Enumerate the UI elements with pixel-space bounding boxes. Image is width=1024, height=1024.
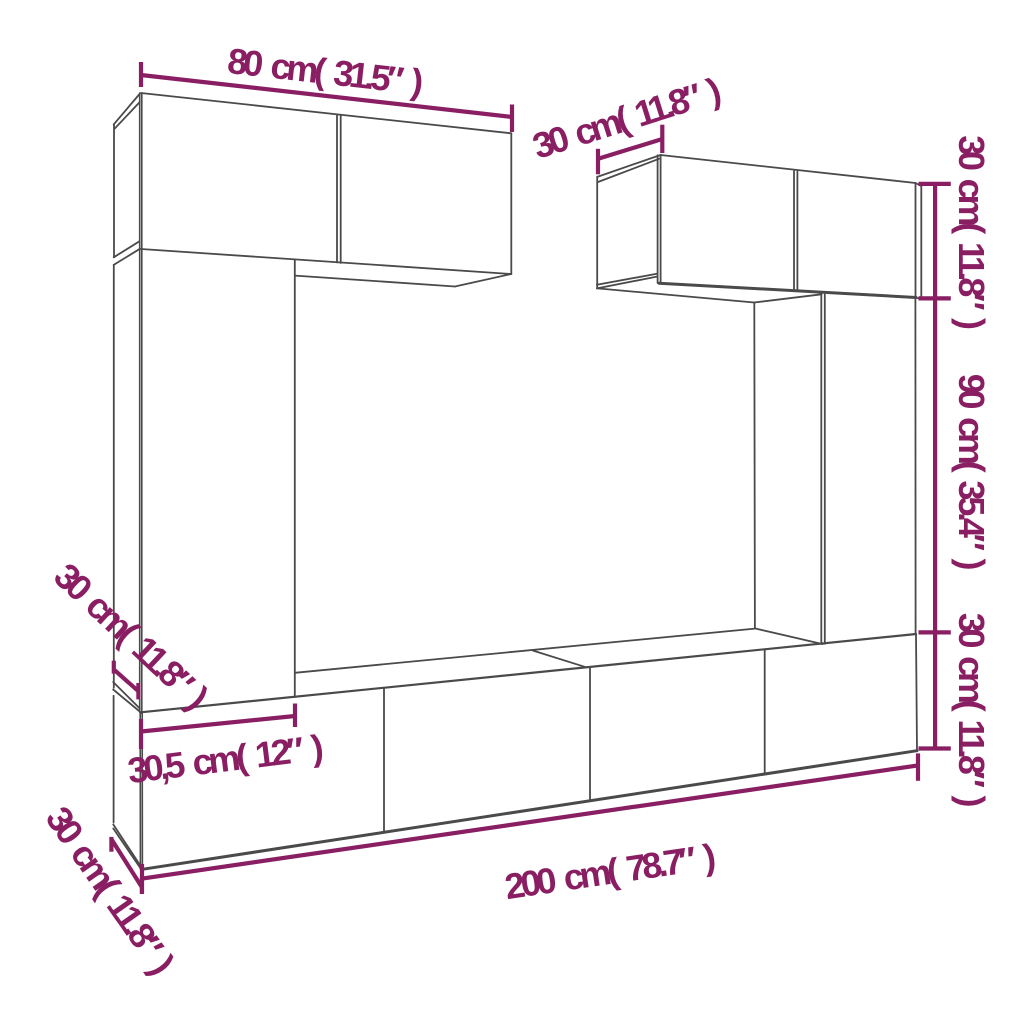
svg-text:30 cm( 11.8″ ): 30 cm( 11.8″ ) xyxy=(951,613,992,807)
svg-text:30 cm( 11.8″ ): 30 cm( 11.8″ ) xyxy=(951,135,992,329)
svg-text:90 cm( 35.4″ ): 90 cm( 35.4″ ) xyxy=(951,374,992,570)
